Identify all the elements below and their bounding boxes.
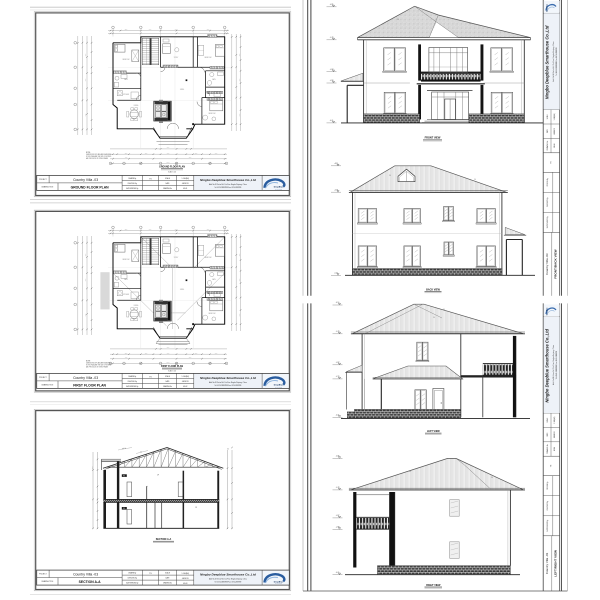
svg-text:3600: 3600 — [238, 278, 240, 281]
svg-text:+5.78: +5.78 — [336, 487, 340, 489]
svg-text:08/08/13: 08/08/13 — [182, 183, 189, 185]
svg-text:2700: 2700 — [195, 353, 198, 355]
svg-text:60: 60 — [227, 449, 229, 451]
svg-text:BACK VIEW: BACK VIEW — [426, 289, 440, 292]
svg-text:SCALE: SCALE — [165, 572, 170, 575]
svg-text:4800: 4800 — [125, 157, 128, 159]
svg-text:3900: 3900 — [167, 153, 170, 155]
svg-text:Tel: 0574-28887888 Fax: 0: Tel: 0574-28887888 Fax: 0574-2888789 — [215, 582, 242, 584]
svg-text:DATE: DATE — [546, 129, 549, 133]
svg-text:+3.37: +3.37 — [336, 362, 340, 364]
svg-text:DRAWN By: DRAWN By — [128, 177, 136, 180]
svg-text:4500: 4500 — [85, 253, 87, 256]
svg-text:BEDROOM: BEDROOM — [123, 59, 130, 61]
svg-text:2F: 2F — [157, 475, 159, 477]
svg-text:2700: 2700 — [195, 153, 198, 155]
svg-text:DRAWING TITLE: DRAWING TITLE — [42, 185, 54, 188]
svg-text:+8.35: +8.35 — [330, 4, 334, 6]
svg-text:DRAWING No: DRAWING No — [546, 444, 549, 454]
svg-text:5100: 5100 — [85, 313, 87, 316]
svg-text:3600: 3600 — [85, 78, 87, 81]
svg-text:Ningbo Deepblue Smarthouse Co.: Ningbo Deepblue Smarthouse Co.,Ltd — [200, 573, 256, 577]
svg-text:-0.05: -0.05 — [334, 273, 338, 275]
svg-text:LIVING: LIVING — [180, 89, 184, 91]
svg-text:7200: 7200 — [189, 357, 192, 359]
svg-text:Ningbo Deepblue Smarthouse Co.: Ningbo Deepblue Smarthouse Co.,Ltd — [545, 328, 550, 402]
svg-text:DRAWING TITLE: DRAWING TITLE — [42, 383, 54, 386]
svg-text:5100: 5100 — [238, 113, 240, 116]
svg-text:2400: 2400 — [149, 229, 152, 231]
svg-text:3600: 3600 — [167, 347, 170, 349]
svg-text:DeepBlue: DeepBlue — [274, 581, 284, 583]
svg-text:1:100(A3): 1:100(A3) — [181, 177, 189, 180]
svg-text:4800: 4800 — [125, 357, 128, 359]
svg-text:FIRST FLOOR PLAN: FIRST FLOOR PLAN — [161, 365, 184, 368]
svg-text:2900: 2900 — [215, 153, 218, 155]
svg-text:SCALE: SCALE — [165, 177, 170, 180]
svg-text:DeepBlue: DeepBlue — [547, 4, 549, 12]
svg-text:30: 30 — [474, 179, 476, 181]
svg-text:DeepBlue: DeepBlue — [547, 307, 549, 315]
svg-text:4500: 4500 — [238, 53, 240, 56]
svg-text:3300: 3300 — [125, 29, 128, 31]
svg-text:DINING: DINING — [134, 305, 139, 307]
svg-text:3600: 3600 — [238, 78, 240, 81]
svg-text:DeepBlue: DeepBlue — [274, 385, 284, 387]
svg-text:08/08/13: 08/08/13 — [182, 381, 189, 383]
svg-text:-0.50: -0.50 — [336, 302, 340, 304]
svg-text:Tel: 0574-28887888 Fax: 0: Tel: 0574-28887888 Fax: 0574-2888789 — [556, 351, 558, 379]
svg-text:SCALE 1:100: SCALE 1:100 — [168, 370, 176, 373]
svg-text:KITCHEN: KITCHEN — [123, 94, 129, 96]
svg-text:DRAWN By: DRAWN By — [128, 572, 136, 575]
svg-text:08/08/13: 08/08/13 — [554, 128, 556, 134]
svg-text:+8.35: +8.35 — [334, 163, 338, 165]
svg-text:RIGHT VIEW: RIGHT VIEW — [426, 584, 441, 587]
svg-text:1500: 1500 — [145, 353, 148, 355]
svg-text:TS: TS — [149, 178, 152, 180]
svg-text:DATE: DATE — [166, 577, 170, 580]
svg-text:08/08/13: 08/08/13 — [554, 431, 556, 437]
svg-text:BATH: BATH — [212, 78, 215, 81]
svg-text:DRAWN By: DRAWN By — [128, 375, 136, 378]
svg-text:DATE: DATE — [166, 182, 170, 185]
svg-text:5100: 5100 — [238, 313, 240, 316]
svg-text:+5.78: +5.78 — [334, 189, 338, 191]
svg-text:12000: 12000 — [166, 362, 169, 364]
svg-text:3900: 3900 — [167, 353, 170, 355]
svg-text:DRAWING TITLE: DRAWING TITLE — [42, 580, 54, 583]
svg-text:2400: 2400 — [149, 29, 152, 31]
svg-text:LEFT VIEW: LEFT VIEW — [427, 430, 440, 433]
svg-text:3900: 3900 — [175, 29, 178, 31]
svg-text:Ningbo Deepblue Smarthouse Co.: Ningbo Deepblue Smarthouse Co.,Ltd — [200, 178, 256, 182]
svg-text:DINING: DINING — [134, 105, 139, 107]
svg-text:NOTE:: NOTE: — [86, 152, 91, 154]
svg-text:1:100(A3): 1:100(A3) — [181, 375, 189, 378]
svg-text:4500: 4500 — [85, 53, 87, 56]
svg-text:SCALE 1:100: SCALE 1:100 — [168, 170, 176, 173]
svg-text:NOTE:: NOTE: — [86, 361, 91, 363]
svg-text:BEDROOM: BEDROOM — [209, 313, 216, 315]
svg-text:LEFT/RIGHT VIEW: LEFT/RIGHT VIEW — [553, 550, 557, 577]
svg-text:DESIGN By: DESIGN By — [547, 482, 549, 490]
svg-text:DRAWING No: DRAWING No — [163, 385, 172, 388]
svg-text:03-01: 03-01 — [183, 188, 187, 190]
svg-text:CHECKED By: CHECKED By — [128, 381, 138, 383]
svg-text:BATH: BATH — [212, 278, 215, 281]
svg-text:FL: FL — [123, 508, 125, 510]
svg-text:FL: FL — [123, 475, 125, 477]
svg-text:Country Villa -03: Country Villa -03 — [545, 552, 549, 574]
svg-text:Country Villa -03: Country Villa -03 — [73, 573, 98, 577]
svg-text:DESIGN By: DESIGN By — [547, 178, 549, 186]
svg-text:3800: 3800 — [207, 229, 210, 231]
svg-text:3800: 3800 — [207, 29, 210, 31]
svg-text:1:100(A3): 1:100(A3) — [553, 416, 556, 423]
svg-text:PROJECT: PROJECT — [39, 377, 46, 379]
svg-text:BEDROOM: BEDROOM — [205, 257, 212, 259]
svg-text:3300: 3300 — [125, 229, 128, 231]
svg-text:DRAWING No: DRAWING No — [163, 187, 172, 190]
svg-text:roof tile: roof tile — [122, 447, 127, 450]
svg-text:BEDROOM: BEDROOM — [205, 57, 212, 59]
svg-text:PROJECT: PROJECT — [39, 179, 46, 181]
svg-text:CHECKED By: CHECKED By — [547, 197, 549, 207]
svg-text:AUTHORIZED By: AUTHORIZED By — [126, 582, 138, 585]
svg-text:Tel: 0574-28887888 Fax: 0: Tel: 0574-28887888 Fax: 0574-2888789 — [215, 385, 242, 387]
svg-text:3.000: 3.000 — [91, 467, 93, 470]
svg-text:4500: 4500 — [238, 253, 240, 256]
svg-text:BEDROOM: BEDROOM — [123, 259, 130, 261]
svg-text:DRAWING No: DRAWING No — [163, 582, 172, 585]
svg-text:SECTION A-A: SECTION A-A — [156, 538, 172, 541]
svg-text:Ningbo Deepblue Smarthouse Co.: Ningbo Deepblue Smarthouse Co.,Ltd — [200, 376, 256, 380]
svg-text:Ningbo Deepblue Smarthouse Co.: Ningbo Deepblue Smarthouse Co.,Ltd — [545, 25, 550, 99]
svg-text:1:100(A3): 1:100(A3) — [181, 572, 189, 575]
svg-text:+5.78: +5.78 — [336, 331, 340, 333]
svg-text:SCALE: SCALE — [165, 375, 170, 378]
svg-text:03-04: 03-04 — [554, 447, 556, 451]
svg-text:3600: 3600 — [85, 278, 87, 281]
svg-text:08/08/13: 08/08/13 — [182, 578, 189, 580]
svg-text:Country Villa -03: Country Villa -03 — [73, 178, 98, 182]
svg-text:DeepBlue: DeepBlue — [274, 187, 284, 189]
svg-text:1:100(A3): 1:100(A3) — [553, 113, 556, 120]
svg-text:CHECKED By: CHECKED By — [128, 578, 138, 580]
svg-text:3600: 3600 — [167, 147, 170, 149]
svg-text:FRONT/BACK VIEW: FRONT/BACK VIEW — [553, 249, 557, 278]
svg-text:SUPERVISED By: SUPERVISED By — [547, 520, 549, 532]
svg-text:5100: 5100 — [85, 113, 87, 116]
svg-text:+2.98: +2.98 — [330, 80, 334, 82]
svg-text:TS: TS — [149, 573, 152, 575]
svg-text:Country Villa -03: Country Villa -03 — [73, 376, 98, 380]
svg-text:DATE: DATE — [166, 380, 170, 383]
svg-text:AUTHORIZED By: AUTHORIZED By — [126, 187, 138, 190]
svg-text:Tel: 0574-28887888 Fax: 0: Tel: 0574-28887888 Fax: 0574-2888789 — [556, 47, 558, 75]
svg-text:SECTION A-A: SECTION A-A — [79, 580, 101, 584]
svg-text:LIVING: LIVING — [180, 289, 184, 291]
svg-text:GROUND FLOOR PLAN: GROUND FLOOR PLAN — [159, 166, 185, 169]
svg-text:1F: 1F — [195, 507, 197, 509]
svg-text:SCALE: SCALE — [546, 114, 549, 119]
svg-text:TS: TS — [149, 376, 152, 378]
svg-text:+2.70: +2.70 — [336, 376, 340, 378]
svg-text:STUDY: STUDY — [174, 57, 179, 59]
svg-text:03-03: 03-03 — [183, 583, 187, 585]
svg-text:7200: 7200 — [189, 157, 192, 159]
svg-text:-0.05: -0.05 — [336, 415, 340, 417]
svg-text:2900: 2900 — [215, 353, 218, 355]
svg-text:+3.37: +3.37 — [330, 69, 334, 71]
svg-text:-0.05: -0.05 — [336, 572, 340, 574]
svg-text:+2.98: +2.98 — [336, 527, 340, 529]
svg-text:CHECKED By: CHECKED By — [128, 183, 138, 185]
svg-text:+8.35: +8.35 — [336, 456, 340, 458]
svg-text:-0.05: -0.05 — [330, 120, 334, 122]
svg-text:3900: 3900 — [175, 229, 178, 231]
svg-text:12000: 12000 — [166, 162, 169, 164]
svg-text:GROUND FLOOR PLAN: GROUND FLOOR PLAN — [71, 185, 110, 189]
svg-text:SUPERVISED By: SUPERVISED By — [547, 216, 549, 228]
svg-text:FRONT VIEW: FRONT VIEW — [425, 137, 441, 140]
svg-text:PROJECT: PROJECT — [39, 574, 46, 576]
svg-text:Country Villa -03: Country Villa -03 — [545, 253, 549, 275]
svg-text:KITCHEN: KITCHEN — [123, 294, 129, 296]
svg-text:+5.78: +5.78 — [330, 37, 334, 39]
svg-text:1500: 1500 — [145, 153, 148, 155]
svg-text:TS: TS — [551, 161, 553, 164]
svg-text:03-04: 03-04 — [554, 143, 556, 147]
svg-text:DRAWING No: DRAWING No — [546, 141, 549, 151]
svg-text:CHECKED By: CHECKED By — [547, 501, 549, 511]
svg-text:BEDROOM: BEDROOM — [209, 113, 216, 115]
svg-text:TS: TS — [551, 464, 553, 467]
svg-text:AUTHORIZED By: AUTHORIZED By — [126, 385, 138, 388]
svg-text:DATE: DATE — [546, 433, 549, 437]
svg-text:+3.37: +3.37 — [336, 515, 340, 517]
svg-text:03-02: 03-02 — [183, 386, 187, 388]
svg-text:3300: 3300 — [125, 153, 128, 155]
svg-text:FIRST FLOOR PLAN: FIRST FLOOR PLAN — [73, 383, 106, 387]
svg-text:STUDY: STUDY — [174, 257, 179, 259]
svg-text:SCALE: SCALE — [546, 418, 549, 423]
svg-text:3300: 3300 — [125, 353, 128, 355]
svg-text:Tel: 0574-28887888 Fax: 0: Tel: 0574-28887888 Fax: 0574-2888789 — [215, 187, 242, 189]
